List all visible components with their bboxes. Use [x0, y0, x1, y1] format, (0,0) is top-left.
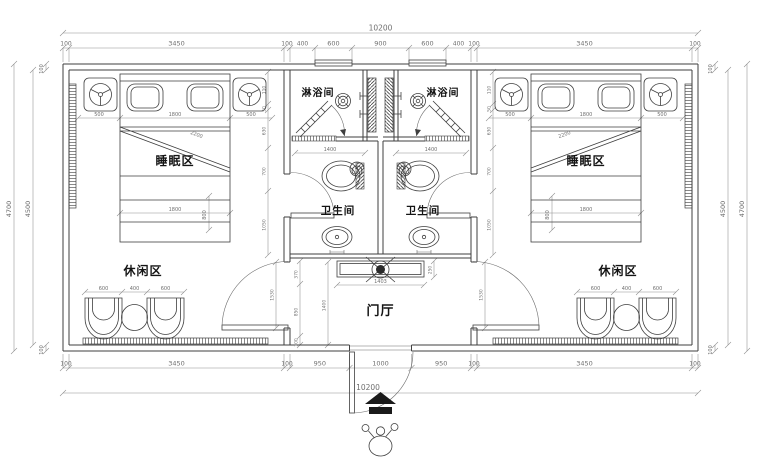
dim-wc-r: 1400: [425, 147, 438, 153]
dim-wall-tr: 100: [708, 64, 714, 74]
dim-top-9: 3450: [576, 40, 593, 48]
window-band: [83, 338, 268, 344]
dim-bedwidth-r: 800: [545, 210, 551, 220]
dim-leisure-r2: 600: [653, 286, 663, 292]
room-label-hall: 门厅: [366, 303, 394, 319]
dim-chain-l3: 700: [262, 167, 268, 176]
dim-top-8: 100: [468, 41, 480, 48]
dim-chain-l0: 110: [262, 86, 268, 95]
shower-window: [315, 60, 352, 66]
dim-top-1: 3450: [168, 40, 185, 48]
dim-bot-2: 100: [281, 361, 293, 368]
bedside-unit: [233, 78, 266, 111]
bedside-unit: [84, 78, 117, 111]
dim-leisure-l1: 400: [130, 286, 140, 292]
dim-left-outer: 4700: [5, 201, 13, 218]
dim-chain-l4: 1050: [262, 219, 268, 231]
room-label-shower-right: 淋浴间: [427, 86, 460, 99]
dim-bedrow-l1: 1800: [169, 112, 182, 118]
dim-bot-8: 100: [689, 361, 701, 368]
person-figure-icon: [362, 424, 398, 457]
round-table: [122, 305, 148, 331]
dim-bot-4: 1000: [372, 360, 389, 368]
dim-top-5: 900: [374, 40, 386, 48]
dim-bedrow-l0: 500: [94, 112, 104, 118]
entrance-hall-items: [337, 257, 424, 456]
dim-leisure-r0: 600: [591, 286, 601, 292]
dim-wc-l: 1400: [324, 147, 337, 153]
dim-hall-1: 850: [294, 308, 300, 317]
dim-bedfoot-r: 1800: [580, 207, 593, 213]
dim-bedfoot-l: 1800: [169, 207, 182, 213]
room-door: [222, 262, 288, 331]
dim-wall-br: 100: [708, 345, 714, 355]
dim-top-3: 400: [297, 41, 309, 48]
dim-leisure-l2: 600: [161, 286, 171, 292]
dim-cabinet-width: 1403: [374, 279, 387, 285]
dim-hall-2: 100: [294, 338, 300, 347]
dim-chain-l1: 50: [262, 106, 268, 112]
dim-bot-5: 950: [435, 360, 447, 368]
dim-door-r: 1530: [479, 289, 485, 301]
dim-left-inner: 4500: [24, 201, 32, 218]
room-label-wc-left: 卫生间: [321, 204, 356, 217]
dim-wall-tl: 100: [39, 64, 45, 74]
dim-chain-r3: 700: [487, 167, 493, 176]
dim-chain-r1: 50: [487, 106, 493, 112]
dim-top-6: 600: [421, 40, 433, 48]
dim-top-2: 100: [281, 41, 293, 48]
dim-bedrow-l2: 500: [246, 112, 256, 118]
dim-bedrow-r0: 500: [505, 112, 515, 118]
dim-top-4: 600: [327, 40, 339, 48]
dim-leisure-l0: 600: [99, 286, 109, 292]
dim-top-10: 100: [689, 41, 701, 48]
room-label-leisure-right: 休闲区: [597, 263, 637, 278]
dim-chain-r4: 1050: [487, 219, 493, 231]
room-label-sleep-left: 睡眠区: [155, 153, 194, 168]
dim-bedwidth-l: 800: [202, 210, 208, 220]
floor-plan-canvas: 10200 100 3450 100 400 600 900 600 400 1…: [0, 0, 760, 473]
dim-bot-1: 3450: [168, 360, 185, 368]
dim-chain-r2: 630: [487, 127, 493, 136]
room-label-sleep-right: 睡眠区: [566, 153, 605, 168]
sink: [322, 227, 352, 255]
tub-chair: [147, 298, 184, 339]
dim-bedrow-r2: 500: [657, 112, 667, 118]
room-label-shower-left: 淋浴间: [302, 86, 335, 99]
dim-chain-r0: 110: [487, 86, 493, 95]
pipe-shaft: [368, 78, 376, 132]
room-label-wc-right: 卫生间: [406, 204, 441, 217]
dim-overall-bottom: 10200: [356, 383, 380, 392]
dim-leisure-r1: 400: [622, 286, 632, 292]
dim-cabinet-depth: 250: [428, 266, 434, 275]
floor-plan-drawing: 10200 100 3450 100 400 600 900 600 400 1…: [0, 0, 760, 473]
dim-overall-top: 10200: [369, 24, 393, 33]
dim-bot-6: 100: [468, 361, 480, 368]
dim-hall-depth: 1400: [322, 300, 328, 312]
room-label-leisure-left: 休闲区: [122, 263, 162, 278]
dim-bedrow-r1: 1800: [580, 112, 593, 118]
pillow: [127, 84, 163, 111]
dim-hall-0: 370: [294, 270, 300, 279]
dim-bot-0: 100: [60, 361, 72, 368]
dim-bot-3: 950: [314, 360, 326, 368]
pillow: [187, 84, 223, 111]
tub-chair: [85, 298, 122, 339]
dim-right-outer: 4700: [738, 201, 746, 218]
dim-door-l: 1530: [270, 289, 276, 301]
dim-wall-bl: 100: [39, 345, 45, 355]
shower-drain: [336, 94, 351, 109]
dim-chain-l2: 630: [262, 127, 268, 136]
radiator-strip: [69, 84, 76, 208]
dim-bot-7: 3450: [576, 360, 593, 368]
dim-beddiag-l: 2200: [189, 130, 203, 140]
dim-top-7: 400: [453, 41, 465, 48]
entry-arrow-icon: [365, 392, 396, 414]
dim-beddiag-r: 2200: [558, 130, 572, 140]
dim-top-0: 100: [60, 41, 72, 48]
dim-right-inner: 4500: [719, 201, 727, 218]
dimension-line: [60, 45, 701, 62]
